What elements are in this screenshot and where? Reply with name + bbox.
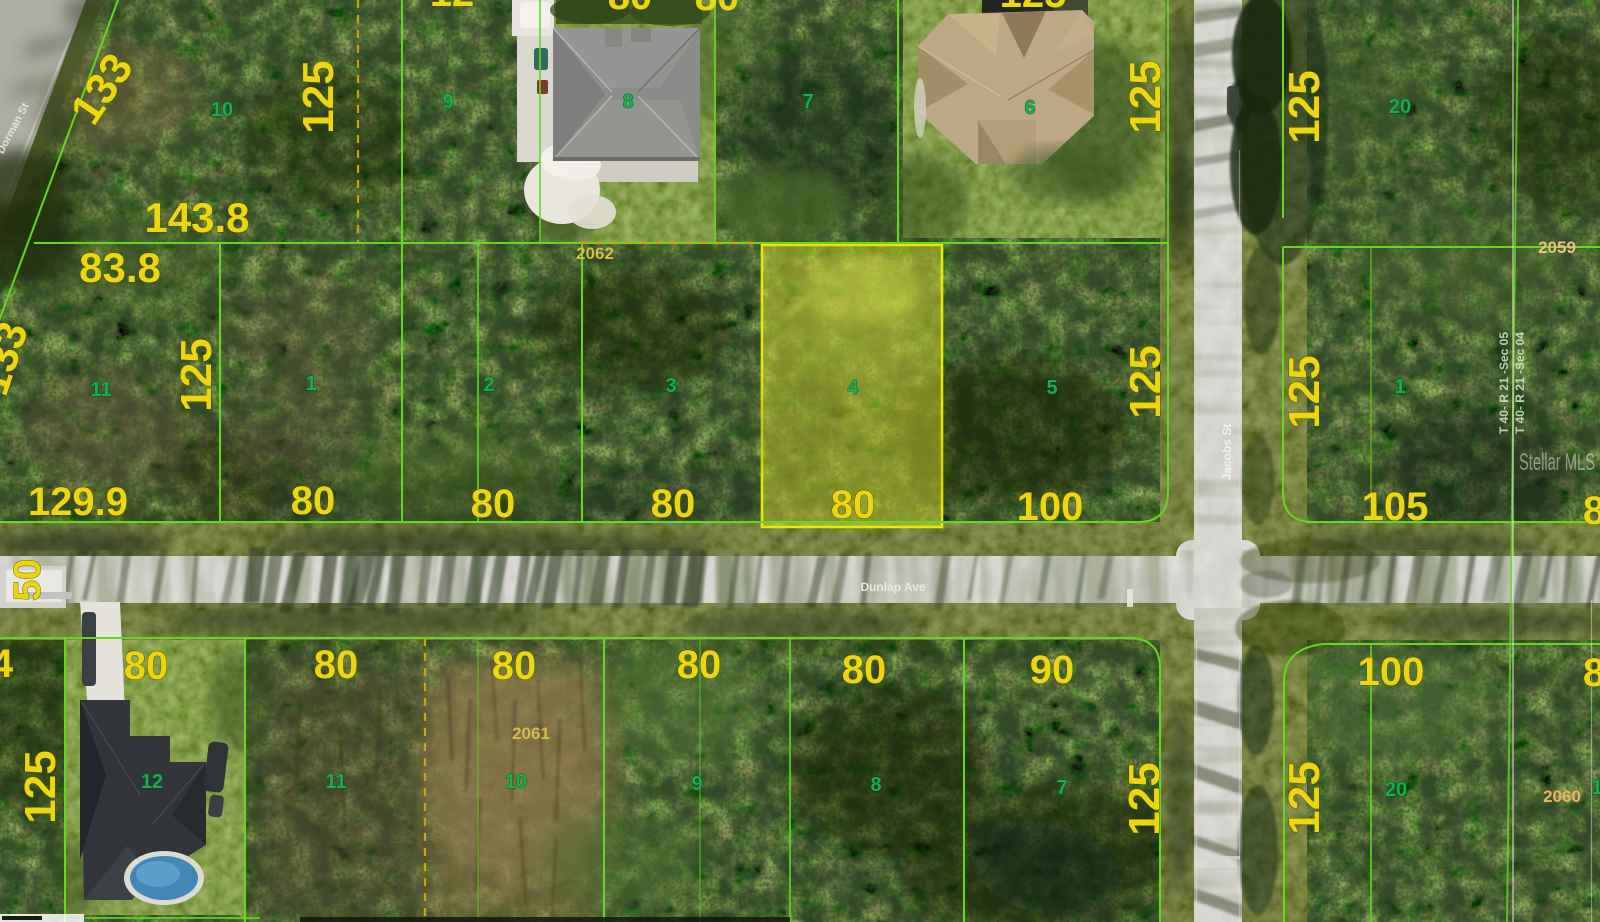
svg-text:8: 8 bbox=[1583, 651, 1600, 695]
svg-text:Stellar MLS: Stellar MLS bbox=[1519, 449, 1595, 476]
svg-text:11: 11 bbox=[325, 771, 346, 793]
svg-text:4: 4 bbox=[847, 377, 859, 399]
svg-text:20: 20 bbox=[1385, 779, 1407, 801]
svg-text:T 40- R 21 -Sec 05: T 40- R 21 -Sec 05 bbox=[1497, 332, 1511, 434]
svg-text:80: 80 bbox=[471, 482, 516, 526]
svg-text:80: 80 bbox=[831, 483, 876, 527]
svg-text:129.9: 129.9 bbox=[28, 480, 128, 524]
svg-text:100: 100 bbox=[1017, 485, 1084, 529]
svg-text:80: 80 bbox=[608, 0, 653, 18]
svg-text:50: 50 bbox=[7, 559, 49, 601]
svg-text:80: 80 bbox=[124, 644, 169, 688]
svg-text:2061: 2061 bbox=[512, 724, 550, 743]
svg-text:80: 80 bbox=[651, 482, 696, 526]
svg-text:8: 8 bbox=[1583, 489, 1600, 533]
svg-text:2062: 2062 bbox=[576, 244, 614, 263]
svg-text:125: 125 bbox=[172, 338, 221, 411]
svg-text:125: 125 bbox=[1280, 355, 1329, 428]
svg-text:125: 125 bbox=[1000, 0, 1067, 16]
svg-text:7: 7 bbox=[1056, 777, 1067, 799]
svg-text:T 40- R 21 -Sec 04: T 40- R 21 -Sec 04 bbox=[1513, 332, 1527, 434]
svg-text:8: 8 bbox=[870, 774, 881, 796]
svg-text:11: 11 bbox=[90, 379, 111, 401]
svg-text:6: 6 bbox=[1024, 97, 1035, 119]
svg-text:Jacobs St: Jacobs St bbox=[1220, 424, 1234, 481]
svg-text:80: 80 bbox=[842, 648, 887, 692]
svg-text:125: 125 bbox=[16, 750, 65, 823]
svg-text:10: 10 bbox=[211, 99, 233, 121]
svg-text:Dunlap Ave: Dunlap Ave bbox=[860, 580, 925, 594]
svg-text:80: 80 bbox=[314, 643, 359, 687]
svg-text:20: 20 bbox=[1389, 96, 1411, 118]
svg-text:5: 5 bbox=[1046, 377, 1057, 399]
svg-text:90: 90 bbox=[1030, 648, 1075, 692]
svg-text:12: 12 bbox=[141, 771, 163, 793]
svg-text:125: 125 bbox=[1120, 762, 1169, 835]
svg-text:10: 10 bbox=[505, 771, 527, 793]
svg-text:80: 80 bbox=[492, 644, 537, 688]
svg-text:1: 1 bbox=[1394, 376, 1405, 398]
svg-text:80: 80 bbox=[677, 643, 722, 687]
svg-text:9: 9 bbox=[442, 91, 453, 113]
svg-text:3: 3 bbox=[665, 375, 676, 397]
svg-text:1: 1 bbox=[1591, 777, 1600, 799]
svg-text:1: 1 bbox=[305, 373, 316, 395]
svg-text:4: 4 bbox=[0, 642, 14, 686]
svg-text:83.8: 83.8 bbox=[79, 244, 161, 291]
svg-text:2060: 2060 bbox=[1543, 787, 1581, 806]
svg-text:125: 125 bbox=[1121, 60, 1170, 133]
svg-text:125: 125 bbox=[1280, 761, 1329, 834]
svg-text:80: 80 bbox=[291, 479, 336, 523]
svg-text:100: 100 bbox=[1358, 650, 1425, 694]
svg-text:125: 125 bbox=[1280, 70, 1329, 143]
svg-text:105: 105 bbox=[1362, 485, 1429, 529]
svg-text:8: 8 bbox=[622, 91, 633, 113]
svg-text:80: 80 bbox=[695, 0, 740, 19]
svg-text:12: 12 bbox=[430, 0, 475, 15]
svg-text:2059: 2059 bbox=[1538, 238, 1576, 257]
svg-text:7: 7 bbox=[802, 91, 813, 113]
svg-text:125: 125 bbox=[294, 60, 343, 133]
svg-text:125: 125 bbox=[1121, 345, 1170, 418]
svg-text:143.8: 143.8 bbox=[144, 194, 249, 241]
svg-text:2: 2 bbox=[483, 374, 494, 396]
svg-text:9: 9 bbox=[691, 773, 702, 795]
